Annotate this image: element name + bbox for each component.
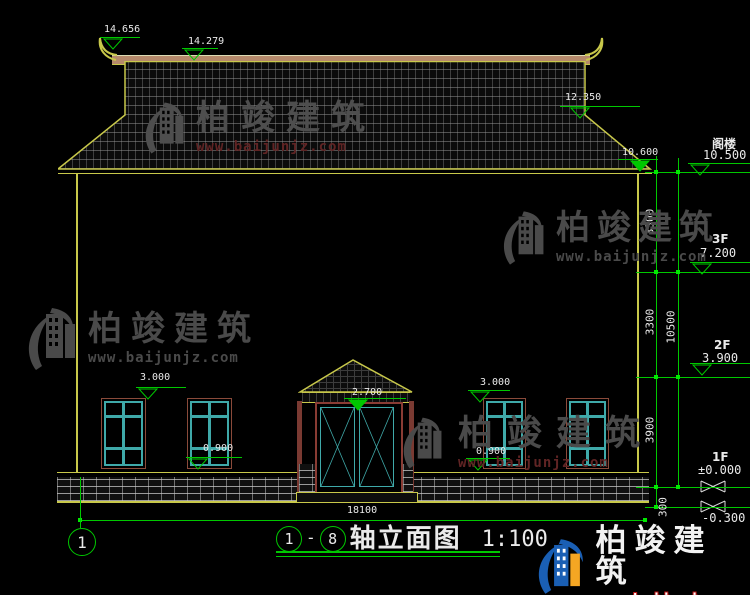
axis-bubble-1: 1: [68, 528, 96, 556]
title-axis-end-number: 8: [328, 530, 337, 548]
dim-node: [654, 170, 658, 174]
elevation-value-roof-break: 12.350: [565, 92, 601, 103]
elevation-value-eave: 10.600: [622, 147, 658, 158]
title-axis-separator: -: [306, 528, 316, 547]
watermark-roof: 柏竣建筑 www.baijunjz.com: [140, 100, 376, 156]
dim-text-plinth-height: 300: [657, 497, 670, 517]
elevation-triangle-icon: [103, 38, 123, 50]
title-underline-thin: [276, 556, 500, 557]
dim-node: [654, 375, 658, 379]
title-name: 轴立面图: [350, 526, 462, 552]
drawing-title: 1 - 8 轴立面图 1:100: [276, 522, 548, 552]
axis-bubble-number: 1: [77, 533, 87, 552]
brand-logo: 柏竣建筑 www.baijunjz.com: [534, 526, 750, 595]
dim-text-3f-height: 3300: [644, 309, 657, 336]
watermark-logo-icon: [22, 304, 78, 374]
elevation-value-window-head-right: 3.000: [480, 377, 510, 388]
watermark-brand: 柏竣建筑: [88, 312, 260, 348]
title-axis-bubble-end: 8: [320, 526, 346, 552]
brand-logo-text: 柏竣建筑 www.baijunjz.com: [595, 526, 750, 595]
watermark-url: www.baijunjz.com: [196, 139, 376, 155]
window-rail-upper: [104, 415, 143, 418]
elevation-value-door-head: 2.700: [352, 387, 382, 398]
brand-logo-name: 柏竣建筑: [595, 526, 750, 588]
watermark-url: www.baijunjz.com: [556, 249, 720, 265]
title-underline-thick: [276, 551, 500, 553]
watermark-mid-right: 柏竣建筑 www.baijunjz.com: [498, 208, 720, 268]
dim-node: [676, 375, 680, 379]
watermark-logo-icon: [394, 416, 448, 470]
watermark-logo-icon: [140, 100, 186, 156]
cad-elevation-drawing: 14.656 14.279 12.350 10.600 3.000 0.900 …: [0, 0, 750, 595]
dim-node: [654, 270, 658, 274]
elevation-triangle-icon: [690, 164, 710, 176]
watermark-mid-left: 柏竣建筑 www.baijunjz.com: [22, 304, 260, 374]
axis-line-1: [80, 477, 81, 528]
watermark-text: 柏竣建筑 www.baijunjz.com: [556, 211, 720, 265]
dim-line-overall-width: [80, 520, 646, 521]
floor-value-1f: ±0.000: [698, 463, 741, 477]
elevation-value-ridge-left: 14.656: [104, 24, 140, 35]
title-axis-bubble-start: 1: [276, 526, 302, 552]
elevation-value-window-sill-left: 0.900: [203, 443, 233, 454]
watermark-brand: 柏竣建筑: [556, 211, 720, 247]
window-mullion: [122, 401, 125, 466]
window-1: [101, 398, 146, 469]
elevation-triangle-icon: [188, 458, 208, 470]
door-step: [296, 492, 418, 503]
dim-node: [643, 518, 647, 522]
elevation-triangle-icon: [692, 364, 712, 376]
elevation-value-ridge: 14.279: [188, 36, 224, 47]
dim-node: [676, 485, 680, 489]
door-leaves: [319, 406, 395, 488]
watermark-brand: 柏竣建筑: [196, 101, 376, 137]
level-extension-eave: [645, 172, 750, 173]
dim-node: [676, 170, 680, 174]
title-axis-start-number: 1: [284, 530, 293, 548]
watermark-text: 柏竣建筑 www.baijunjz.com: [88, 312, 260, 366]
floor-value-attic: 10.500: [703, 148, 746, 162]
window-rail-upper: [190, 415, 229, 418]
elevation-triangle-icon: [348, 399, 368, 411]
floor-label-1f: 1F: [712, 450, 729, 464]
elevation-triangle-icon: [470, 391, 490, 403]
elevation-triangle-icon: [570, 107, 590, 119]
dim-node: [676, 270, 680, 274]
watermark-brand: 柏竣建筑: [458, 416, 654, 453]
window-rail-lower: [104, 447, 143, 450]
brand-logo-icon: [534, 538, 589, 595]
dim-text-overall-width: 18100: [347, 505, 377, 516]
watermark-url: www.baijunjz.com: [458, 455, 654, 471]
watermark-text: 柏竣建筑 www.baijunjz.com: [458, 416, 654, 471]
dim-node: [654, 485, 658, 489]
elevation-triangle-icon: [630, 160, 650, 172]
watermark-text: 柏竣建筑 www.baijunjz.com: [196, 101, 376, 155]
watermark-logo-icon: [498, 208, 546, 268]
roof-right-eave-curl-icon: [584, 36, 610, 62]
dim-text-total-height: 10500: [665, 310, 678, 343]
elevation-triangle-icon: [138, 388, 158, 400]
watermark-url: www.baijunjz.com: [88, 350, 260, 366]
floor-label-2f: 2F: [714, 338, 731, 352]
elevation-triangle-icon: [184, 49, 204, 61]
watermark-lower: 柏竣建筑 www.baijunjz.com: [394, 416, 654, 471]
